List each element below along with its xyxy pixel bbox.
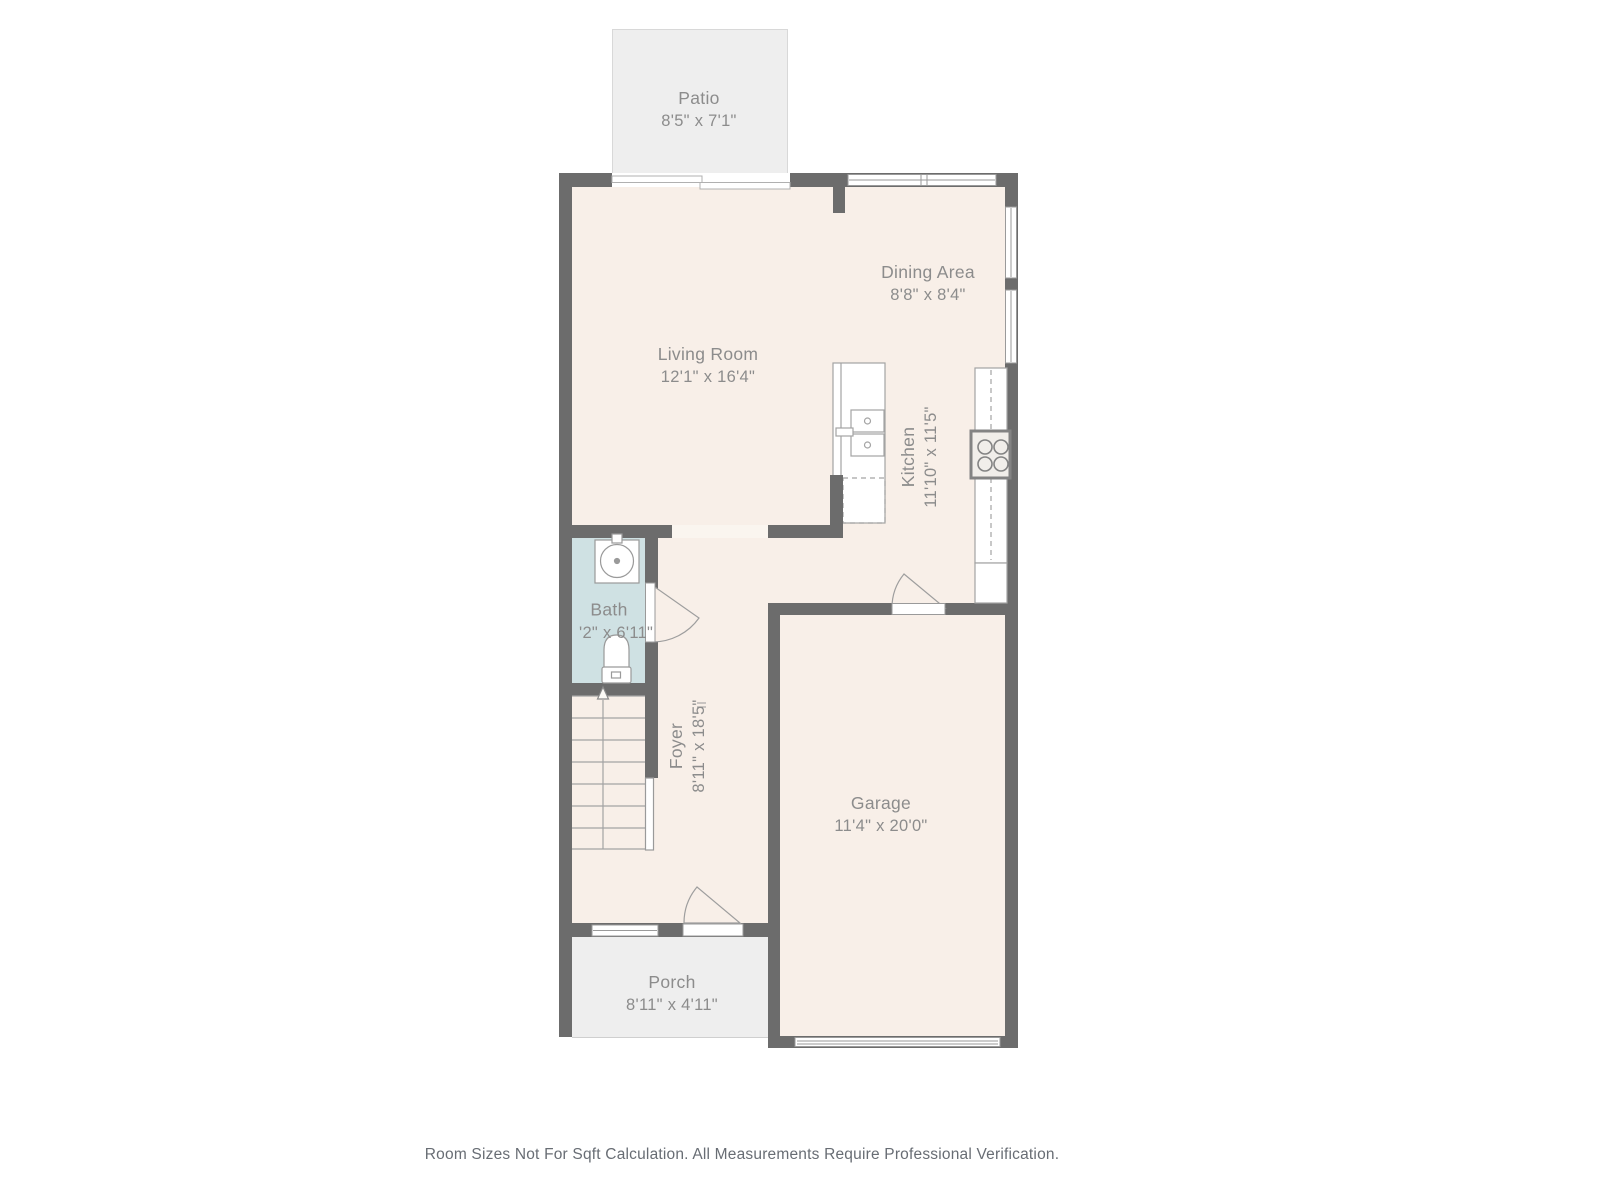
kitchen-counter	[975, 368, 1007, 603]
disclaimer-text: Room Sizes Not For Sqft Calculation. All…	[425, 1146, 1059, 1164]
sliding-door	[612, 176, 790, 189]
room-dims: 8'11" x 4'11"	[626, 994, 718, 1017]
room-name: Dining Area	[881, 261, 975, 284]
room-dims: 8'11" x 18'5"	[688, 699, 711, 792]
stove	[971, 431, 1010, 478]
room-dims: 11'10" x 11'5"	[920, 406, 943, 507]
porch-label: Porch 8'11" x 4'11"	[626, 971, 718, 1017]
dining-right-window	[1006, 207, 1017, 278]
living-room-label: Living Room 12'1" x 16'4"	[658, 343, 759, 389]
room-name: Living Room	[658, 343, 759, 366]
kitchen-garage-door	[892, 574, 945, 615]
stairs	[572, 687, 654, 850]
kitchen-right-window	[1006, 290, 1017, 363]
dining-area-label: Dining Area 8'8" x 8'4"	[881, 261, 975, 307]
room-name: Garage	[834, 792, 927, 815]
front-door	[683, 887, 743, 936]
patio-label: Patio 8'5" x 7'1"	[661, 87, 736, 133]
room-dims: 8'8" x 8'4"	[881, 284, 975, 307]
stair-handrail	[646, 778, 654, 850]
garage-door	[795, 1038, 1000, 1047]
bath-dims: '2" x 6'11"	[579, 623, 653, 643]
bath-sink	[595, 534, 639, 583]
room-dims: 12'1" x 16'4"	[658, 366, 759, 389]
room-name: Porch	[626, 971, 718, 994]
room-dims: 8'5" x 7'1"	[661, 110, 736, 133]
bath-door	[646, 583, 700, 642]
foyer-label: Foyer 8'11" x 18'5"	[665, 699, 711, 792]
garage-label: Garage 11'4" x 20'0"	[834, 792, 927, 838]
room-name: Foyer	[665, 699, 688, 792]
bath-label: Bath	[590, 599, 627, 622]
floor-plan-canvas: Patio 8'5" x 7'1" Living Room 12'1" x 16…	[0, 0, 1600, 1200]
stairs-up-arrow	[598, 687, 609, 699]
kitchen-label: Kitchen 11'10" x 11'5"	[897, 406, 943, 507]
room-name: Patio	[661, 87, 736, 110]
room-name: Bath	[590, 599, 627, 622]
porch-window	[592, 925, 658, 936]
room-dims: 11'4" x 20'0"	[834, 815, 927, 838]
dining-top-window	[848, 175, 996, 186]
wall-counter-stub	[830, 475, 843, 538]
room-name: Kitchen	[897, 406, 920, 507]
